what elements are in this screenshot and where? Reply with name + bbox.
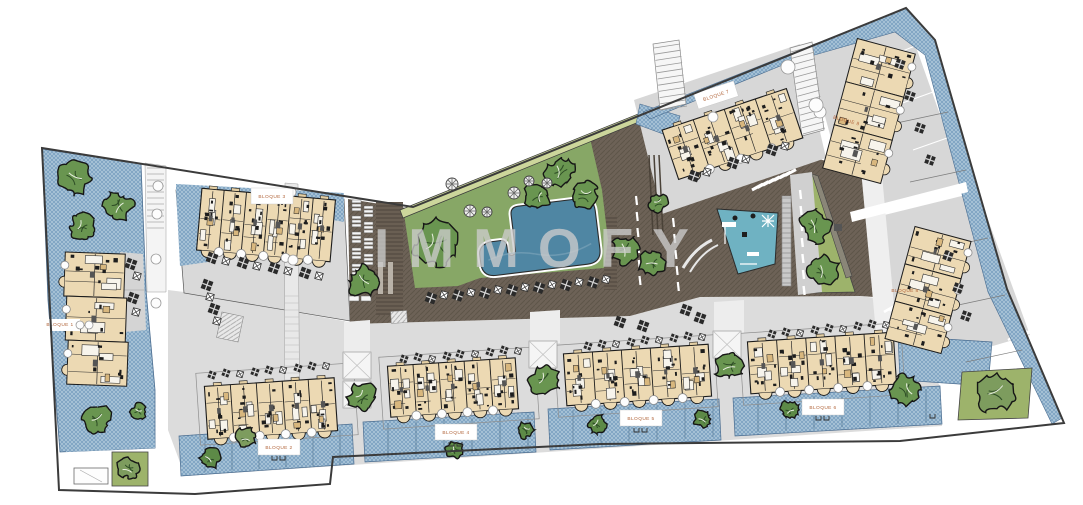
svg-text:IMMOFY: IMMOFY [374,217,708,279]
svg-text:BLOQUE 5: BLOQUE 5 [627,416,654,422]
svg-text:BLOQUE 3: BLOQUE 3 [258,194,285,200]
svg-text:BLOQUE 8: BLOQUE 8 [891,288,918,294]
svg-text:BLOQUE 4: BLOQUE 4 [442,430,469,436]
svg-text:BLOQUE 6: BLOQUE 6 [809,405,836,411]
svg-text:BLOQUE 2: BLOQUE 2 [265,445,292,451]
